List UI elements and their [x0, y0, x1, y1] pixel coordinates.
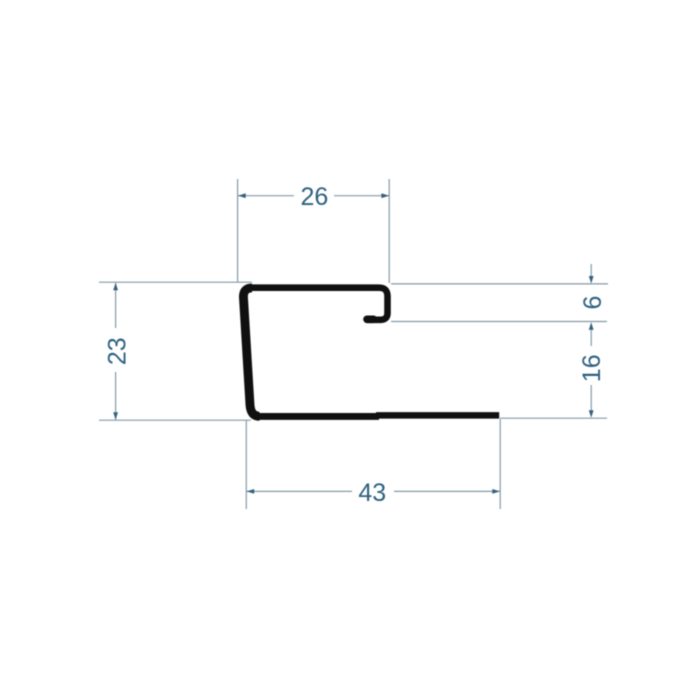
svg-text:26: 26 [300, 183, 328, 211]
svg-text:6: 6 [579, 296, 607, 310]
svg-text:23: 23 [104, 337, 132, 365]
svg-text:16: 16 [578, 354, 606, 382]
svg-text:43: 43 [358, 479, 386, 507]
